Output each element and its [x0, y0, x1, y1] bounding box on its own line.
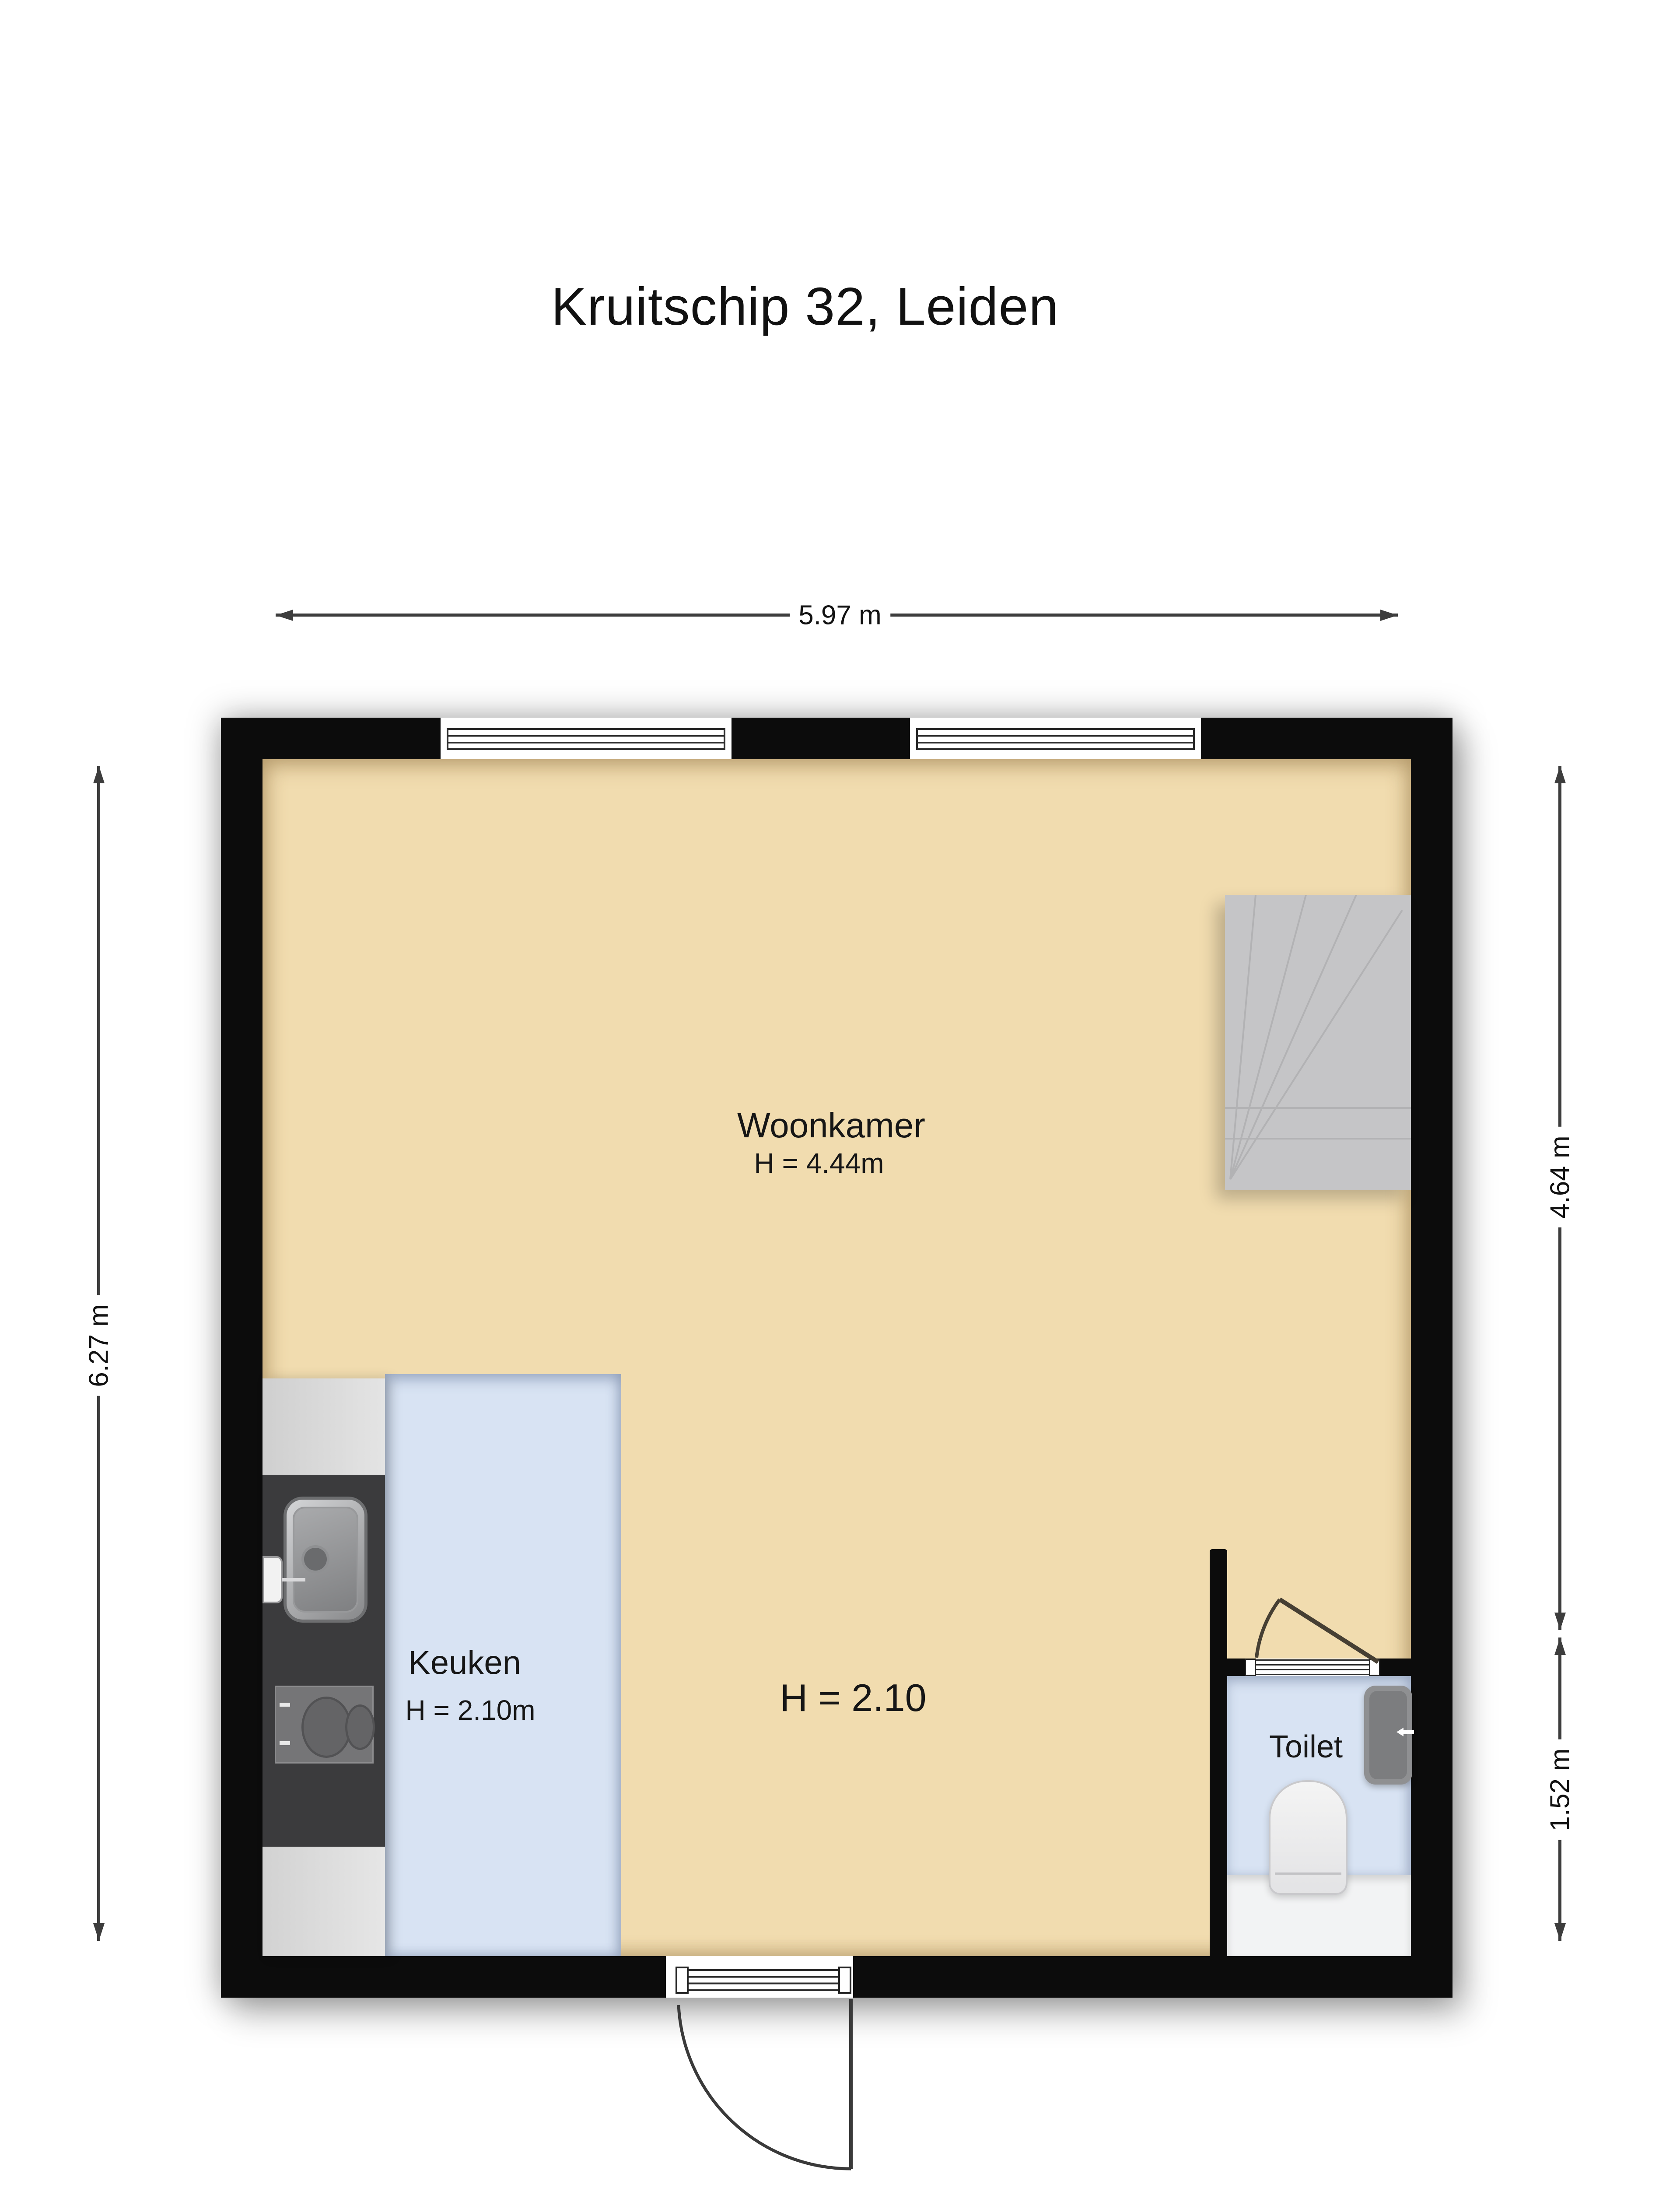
open-area-height-label: H = 2.10	[780, 1676, 926, 1720]
dimension-label-right-lower: 1.52 m	[1542, 1739, 1578, 1840]
arrow-icon	[1554, 1923, 1566, 1941]
room-height-woonkamer: H = 4.44m	[754, 1147, 884, 1179]
room-label-toilet: Toilet	[1269, 1729, 1343, 1765]
arrow-icon	[93, 766, 105, 783]
room-label-woonkamer: Woonkamer	[737, 1105, 925, 1146]
dimension-label-left: 6.27 m	[81, 1295, 117, 1396]
arrow-icon	[1380, 610, 1398, 621]
toilet-door-swing-arc	[1256, 1599, 1280, 1658]
room-height-keuken: H = 2.10m	[405, 1694, 535, 1726]
arrow-icon	[1554, 1613, 1566, 1630]
floorplan-page: Kruitschip 32, Leiden	[0, 0, 1680, 2188]
toilet-door-leaf	[1280, 1599, 1378, 1662]
arrow-icon	[1554, 1637, 1566, 1655]
door-swing-overlay	[0, 0, 1680, 2188]
arrow-icon	[1554, 766, 1566, 783]
room-label-keuken: Keuken	[408, 1644, 521, 1682]
dimension-label-right-upper: 4.64 m	[1542, 1127, 1578, 1227]
arrow-icon	[93, 1923, 105, 1941]
dimension-label-top: 5.97 m	[790, 597, 890, 634]
entry-door-swing-arc	[679, 2005, 851, 2169]
arrow-icon	[276, 610, 293, 621]
